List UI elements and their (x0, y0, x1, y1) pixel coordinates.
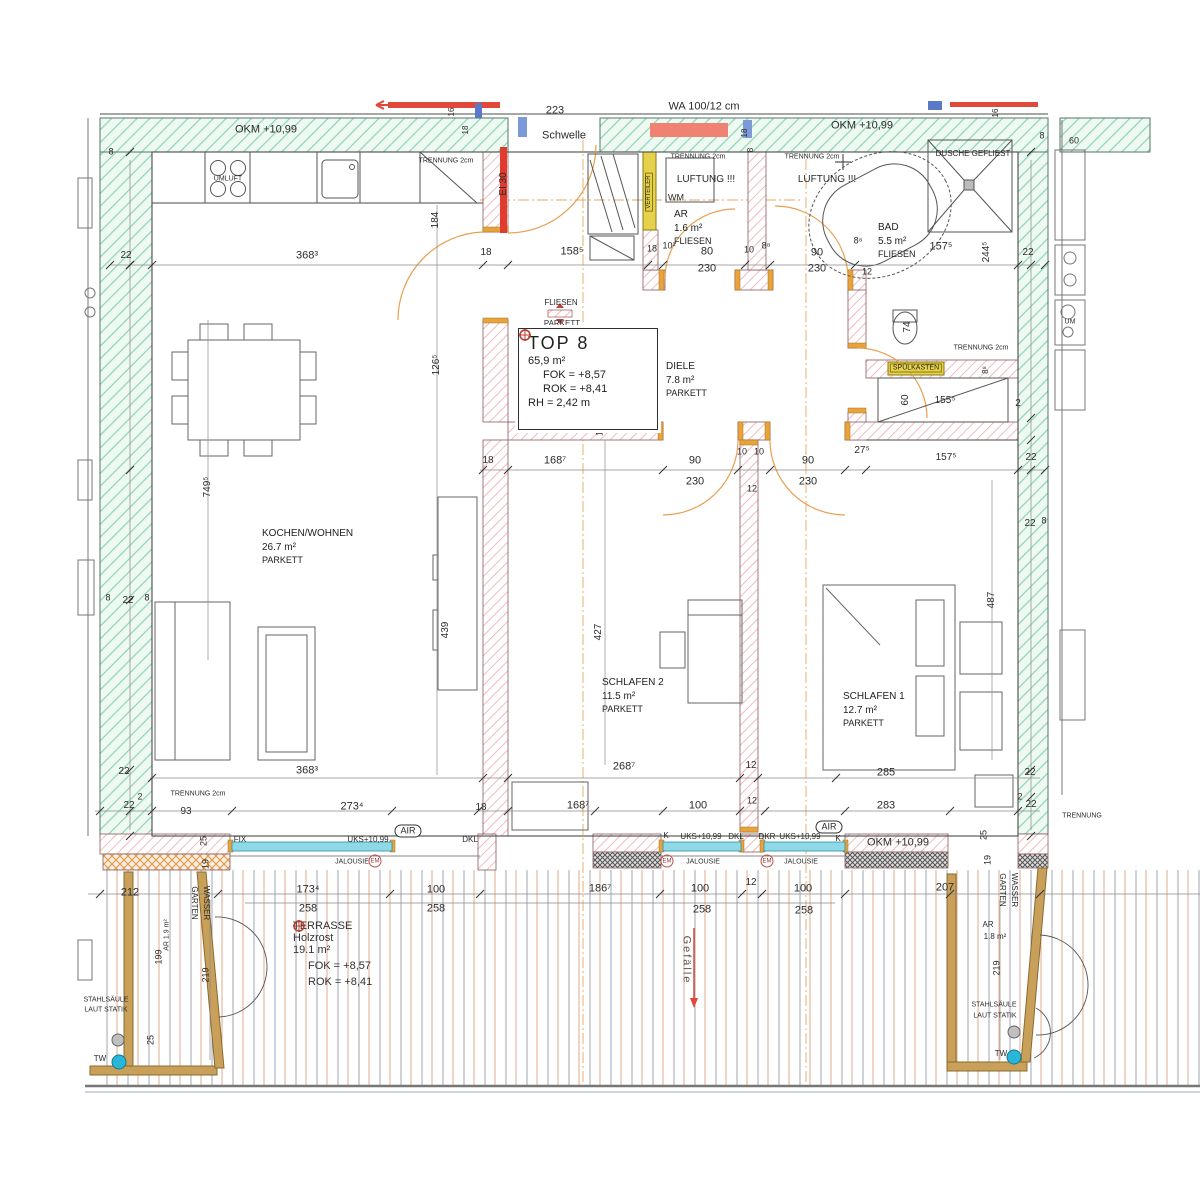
annotation-layer: OKM +10,99OKM +10,99OKM +10,99223Schwell… (0, 0, 1200, 1182)
dim-label: 199 (155, 949, 164, 964)
dim-label: 168⁷ (544, 456, 566, 467)
dim-label: 90 (689, 456, 701, 467)
floorplan-canvas: OKM +10,99OKM +10,99OKM +10,99223Schwell… (0, 0, 1200, 1182)
dim-label: LAUT STATIK (84, 1007, 127, 1014)
dim-label: 12 (747, 797, 757, 806)
dim-label: STAHLSÄULE (972, 1002, 1017, 1009)
dim-label: 230 (799, 477, 817, 488)
dim-label: AIR (815, 821, 842, 834)
dim-label: TRENNUNG 2cm (671, 154, 726, 161)
dim-label: 100 (689, 801, 707, 812)
dim-label: LAUT STATIK (973, 1013, 1016, 1020)
dim-label: K (663, 832, 668, 840)
dim-label: 8 (108, 148, 113, 157)
dim-label: 1.8 m² (984, 933, 1007, 941)
dim-label: 19 (202, 859, 211, 869)
dim-label: 25 (147, 1035, 156, 1045)
dim-label: 2 (1015, 399, 1021, 409)
dim-label: PARKETT (544, 320, 580, 328)
rok-icon (293, 976, 305, 988)
dim-label: 219 (993, 960, 1002, 975)
dim-label: 285 (877, 768, 895, 779)
dim-label: Schwelle (542, 131, 586, 142)
dim-label: 10 (754, 448, 764, 457)
dim-label: 100 (794, 884, 812, 895)
fok-icon (293, 960, 305, 972)
dim-label: OKM +10,99 (235, 125, 297, 136)
dim-label: 8 (747, 148, 755, 152)
dim-label: AR (982, 921, 993, 929)
dim-label: OKM +10,99 (867, 838, 929, 849)
dim-label: 16 (448, 108, 456, 117)
dim-label: 219 (202, 967, 211, 982)
dim-label: LUFTUNG !!! (798, 175, 856, 185)
dim-label: 244⁵ (982, 242, 992, 263)
terrace-sub: Holzrost (293, 932, 372, 944)
dim-label: 19 (984, 855, 993, 865)
dim-label: WA 100/12 cm (668, 102, 739, 113)
dim-label: 223 (546, 106, 564, 117)
dim-label: 212 (121, 888, 139, 899)
dim-label: 157⁵ (930, 242, 953, 253)
dim-label: 12 (862, 268, 872, 277)
fok-icon (528, 369, 540, 381)
dim-label: 22 (1025, 800, 1036, 810)
dim-label: 18 (480, 248, 491, 258)
dim-label: UKS+10,99 (680, 833, 721, 841)
dim-label: 10 (737, 448, 747, 457)
dim-label: DUSCHE GEFLIEST (936, 150, 1011, 158)
dim-label: 258 (299, 904, 317, 915)
dim-label: 18 (462, 126, 470, 135)
dim-label: UM (1065, 319, 1076, 326)
dim-label: 2 (137, 793, 142, 802)
dim-label: 12 (745, 878, 756, 888)
dim-label: 93 (180, 807, 191, 817)
dim-label: 100 (427, 885, 445, 896)
dim-label: TRENNUNG 2cm (954, 345, 1009, 352)
dim-label: 8⁸ (982, 366, 990, 374)
dim-label: 22 (1022, 248, 1033, 258)
yellow-tag-label: SPÜLKASTEN (890, 364, 942, 373)
room-label-schlafen1: SCHLAFEN 1 12.7 m² PARKETT (843, 690, 905, 729)
fok-value: FOK = +8,57 (543, 369, 606, 381)
dim-label: 74 (903, 321, 913, 332)
dim-label: 8⁸ (854, 237, 863, 246)
dim-label: EI 30 (499, 172, 509, 195)
dim-label: 186⁷ (589, 884, 611, 895)
dim-label: 60 (1069, 137, 1079, 146)
dim-label: 168⁷ (567, 801, 589, 812)
dim-label: K (835, 835, 840, 843)
dim-label: TRENNUNG 2cm (419, 158, 474, 165)
dim-label: 258 (427, 904, 445, 915)
dim-label: 80 (701, 247, 713, 258)
dim-label: 22 (122, 596, 133, 606)
dim-label: AIR (394, 825, 421, 838)
room-label-kochen: KOCHEN/WOHNEN 26.7 m² PARKETT (262, 527, 353, 566)
dim-label: TRENNUNG 2cm (171, 791, 226, 798)
dim-label: DKR (759, 833, 776, 841)
dim-label: TRENNUNG 2cm (785, 154, 840, 161)
dim-label: DKL (462, 836, 478, 844)
dim-label: 18 (647, 245, 657, 254)
terrace-info: TERRASSE Holzrost 19.1 m² FOK = +8,57 RO… (293, 920, 372, 988)
dim-label: 487 (987, 592, 997, 609)
dim-label: 22 (120, 251, 131, 261)
dim-label: 273⁴ (340, 802, 363, 813)
terrace-rok: ROK = +8,41 (308, 976, 372, 988)
dim-label: EM (661, 855, 674, 868)
dim-label: 207 (936, 883, 954, 894)
dim-label: 8⁸ (762, 242, 771, 251)
dim-label: 749⁵ (203, 477, 213, 498)
room-label-diele: DIELE 7.8 m² PARKETT (666, 360, 707, 399)
unit-area: 65,9 m² (528, 355, 657, 367)
dim-label: 8 (1041, 517, 1046, 526)
dim-label: 90 (811, 248, 823, 259)
unit-info-box: TOP 8 65,9 m² FOK = +8,57 ROK = +8,41 RH… (518, 328, 658, 430)
dim-label: 10 (744, 246, 754, 255)
dim-label: DKL (728, 833, 744, 841)
dim-label: JALOUSIE (686, 859, 720, 866)
dim-label: 184 (431, 212, 441, 229)
yellow-tag-label: VERTEILER (645, 172, 653, 211)
dim-label: UKS+10,99 (347, 836, 388, 844)
dim-label: 368³ (296, 251, 318, 262)
room-label-bad: BAD 5.5 m² FLIESEN (878, 221, 916, 260)
dim-label: 157⁵ (936, 453, 957, 463)
dim-label: 27⁵ (854, 446, 869, 456)
dim-label: 22 (123, 801, 134, 811)
dim-label: 22 (1025, 453, 1036, 463)
dim-label: WASSER (202, 886, 210, 920)
dim-label: 258 (693, 905, 711, 916)
dim-label: 22 (118, 767, 129, 777)
dim-label: 18 (475, 803, 486, 813)
dim-label: 2 (1017, 793, 1022, 802)
dim-label: 18 (741, 129, 749, 138)
dim-label: 283 (877, 801, 895, 812)
dim-label: 230 (686, 477, 704, 488)
dim-label: TRENNUNG (1062, 813, 1102, 820)
dim-label: EM (369, 855, 382, 868)
dim-label: 8 (105, 594, 110, 603)
dim-label: 258 (795, 906, 813, 917)
terrace-area: 19.1 m² (293, 944, 372, 956)
dim-label: AR 1.9 m² (164, 919, 171, 951)
rok-value: ROK = +8,41 (543, 383, 607, 395)
dim-label: 100 (691, 884, 709, 895)
dim-label: 230 (698, 264, 716, 275)
dim-label: 25 (980, 830, 989, 840)
dim-label: JALOUSIE (335, 859, 369, 866)
room-label-ar: AR 1.6 m² FLIESEN (674, 208, 712, 247)
dim-label: 25 (200, 836, 209, 846)
dim-label: WASSER (1010, 873, 1018, 907)
dim-label: 16 (992, 109, 1000, 118)
dim-label: TW (995, 1050, 1007, 1058)
dim-label: 12 (745, 761, 756, 771)
dim-label: 12 (747, 485, 757, 494)
dim-label: 8 (144, 594, 149, 603)
dim-label: 60 (901, 394, 911, 405)
dim-label: 155⁵ (935, 396, 956, 406)
dim-label: UMLUFT (214, 176, 242, 183)
dim-label: TW (94, 1055, 106, 1063)
dim-label: 22 (1024, 519, 1035, 529)
dim-label: JALOUSIE (784, 859, 818, 866)
dim-label: 427 (594, 624, 604, 641)
room-height: RH = 2,42 m (528, 397, 657, 409)
dim-label: 8 (1039, 132, 1044, 141)
dim-label: 268⁷ (613, 762, 635, 773)
dim-label: FIX (234, 836, 246, 844)
dim-label: 173⁴ (296, 885, 319, 896)
dim-label: GARTEN (190, 886, 198, 919)
room-label-schlafen2: SCHLAFEN 2 11.5 m² PARKETT (602, 676, 664, 715)
dim-label: LUFTUNG !!! (677, 175, 735, 185)
dim-label: 18 (482, 456, 493, 466)
dim-label: 439 (441, 622, 451, 639)
dim-label: 126⁵ (432, 355, 442, 376)
dim-label: EM (761, 855, 774, 868)
dim-label: OKM +10,99 (831, 121, 893, 132)
dim-label: STAHLSÄULE (84, 997, 129, 1004)
dim-label: 368³ (296, 766, 318, 777)
dim-label: 230 (808, 264, 826, 275)
dim-label: 158⁵ (561, 247, 584, 258)
dim-label: WM (668, 194, 684, 203)
unit-title: TOP 8 (528, 333, 657, 354)
dim-label: Gefälle (681, 936, 692, 985)
dim-label: UKS+10,99 (779, 833, 820, 841)
dim-label: GARTEN (998, 873, 1006, 906)
dim-label: 22 (1024, 768, 1035, 778)
dim-label: 90 (802, 456, 814, 467)
rok-icon (528, 383, 540, 395)
terrace-fok: FOK = +8,57 (308, 960, 371, 972)
dim-label: FLIESEN (544, 299, 577, 307)
